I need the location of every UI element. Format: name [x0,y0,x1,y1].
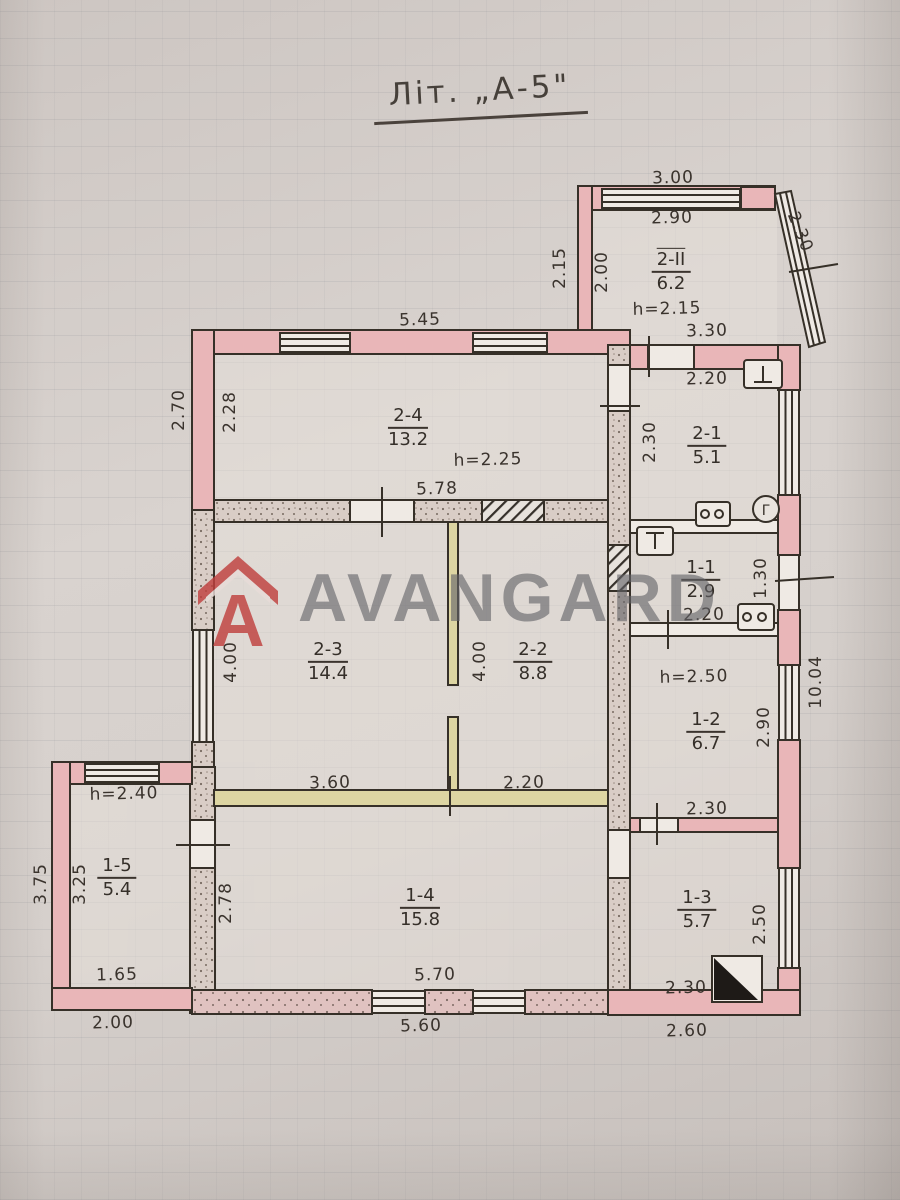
middle-bearing-wall [214,500,608,522]
dim-r22-bottom: 2.20 [503,772,545,793]
stove-icon-2 [738,604,774,630]
room-label-1-4: 1-4 15.8 [400,886,440,930]
dim-annex-left-in: 2.00 [592,251,612,293]
dim-r13-bottom-in: 2.30 [665,977,707,998]
dim-annex-bottom: 3.30 [686,320,728,341]
dim-r24-top: 5.45 [399,309,441,330]
dim-r11-right: 1.30 [751,557,771,599]
dim-main-left: 2.70 [169,389,189,431]
room-label-1-1: 1-1 2.9 [681,558,720,602]
dim-r15-left-in: 3.25 [70,863,90,905]
dim-r11-bottom: 2.20 [683,604,725,625]
dim-r21-left: 2.30 [640,421,660,463]
dim-r12-right: 2.90 [754,706,774,748]
dim-r22-left: 4.00 [470,640,490,682]
dim-r12-bottom: 2.30 [686,798,728,819]
room-label-1-2: 1-2 6.7 [686,710,725,754]
stove-icon [696,502,730,526]
gas-meter-letter: Г [762,503,771,519]
room-label-2-3: 2-3 14.4 [308,640,348,684]
height-label-2-4: h=2.25 [453,449,522,471]
dim-r14-bottom-in: 5.70 [414,964,456,985]
room-label-2-1: 2-1 5.1 [687,424,726,468]
room-label-2-II: 2-II 6.2 [652,250,691,294]
dim-r23-left: 4.00 [221,641,241,683]
dim-r23-bottom: 3.60 [309,772,351,793]
room-label-1-5: 1-5 5.4 [97,856,136,900]
dim-r13-right: 2.50 [750,903,770,945]
dim-r21-top: 2.20 [686,368,728,389]
floor-plan-drawing: Г [0,0,900,1200]
dim-r24-bottom: 5.78 [416,478,458,499]
height-label-1-5: h=2.40 [89,783,158,805]
dim-r14-bottom-out: 5.60 [400,1015,442,1036]
height-label-2-II: h=2.15 [632,298,701,320]
room-label-1-3: 1-3 5.7 [677,888,716,932]
sink-icon-2 [637,527,673,555]
dim-r15-bottom-in: 1.65 [96,964,138,985]
dim-r15-left-out: 3.75 [31,863,51,905]
dim-annex-top: 3.00 [652,167,694,188]
sink-icon [744,360,782,388]
dim-annex-top-in: 2.90 [651,207,693,228]
gas-meter-icon: Г [753,496,779,522]
central-bearing-wall [608,345,630,990]
scanned-floor-plan-page: Г Літ. „А-5" 2-II 6.2 h=2.15 2-4 13.2 h=… [0,0,900,1200]
room-label-2-2: 2-2 8.8 [513,640,552,684]
dim-r14-left: 2.78 [216,882,236,924]
dim-r15-bottom-out: 2.00 [92,1012,134,1033]
room-label-2-4: 2-4 13.2 [388,406,428,450]
dim-right-total: 10.04 [806,655,826,709]
dim-annex-left-out: 2.15 [550,247,570,289]
dim-r24-left: 2.28 [220,391,240,433]
furnace-icon [712,956,762,1002]
height-label-1-2: h=2.50 [659,666,728,688]
dim-r13-bottom-out: 2.60 [666,1020,708,1041]
